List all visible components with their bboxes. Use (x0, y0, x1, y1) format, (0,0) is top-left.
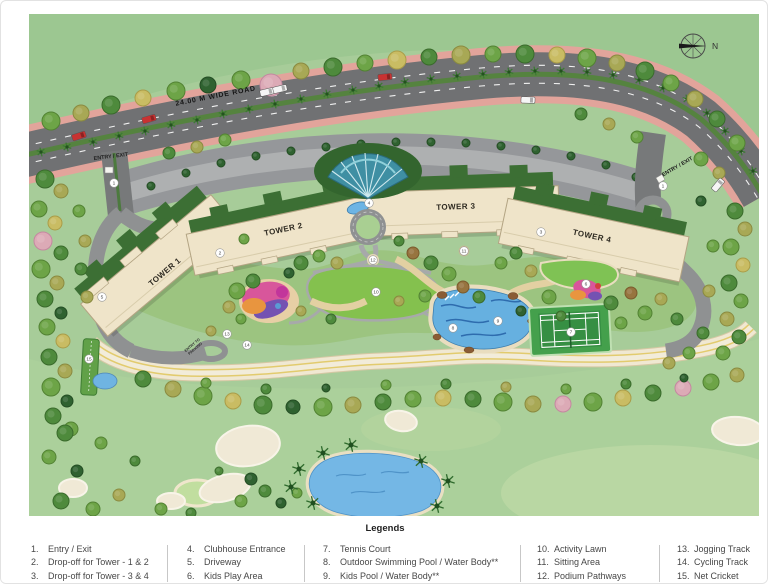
svg-text:1: 1 (113, 181, 116, 187)
legend-item: 13.Jogging Track (677, 543, 750, 556)
clubhouse (314, 143, 422, 199)
golf-light-patch (361, 407, 501, 451)
plan-marker: 6 (582, 280, 591, 289)
entry-court (353, 212, 383, 242)
svg-text:10: 10 (373, 290, 379, 296)
plan-marker: 4 (365, 199, 374, 208)
plan-marker: 11 (460, 247, 469, 256)
plan-marker: 2 (216, 249, 225, 258)
plan-marker: 8 (449, 324, 458, 333)
pond (93, 373, 117, 389)
legend-item: 1.Entry / Exit (31, 543, 149, 556)
legend-column-2: 4.Clubhouse Entrance 5.Driveway 6.Kids P… (187, 543, 286, 583)
svg-text:7: 7 (570, 330, 573, 336)
svg-text:8: 8 (452, 326, 455, 332)
legend-item: 5.Driveway (187, 556, 286, 569)
legend-item: 7.Tennis Court (323, 543, 498, 556)
legend-item: 2.Drop-off for Tower - 1 & 2 (31, 556, 149, 569)
svg-text:2: 2 (219, 251, 222, 257)
legend-item: 11.Sitting Area (537, 556, 626, 569)
legend: Legends 1.Entry / Exit 2.Drop-off for To… (1, 516, 768, 584)
svg-text:15: 15 (86, 357, 92, 363)
legend-item: 10.Activity Lawn (537, 543, 626, 556)
site-plan-page: TOWER 1 TOWER 2 TOWER 3 (0, 0, 768, 584)
legend-divider (659, 545, 660, 582)
legend-title: Legends (1, 523, 768, 534)
plan-marker: 14 (243, 341, 252, 350)
tower-3-label: TOWER 3 (436, 202, 476, 212)
svg-text:12: 12 (370, 258, 376, 264)
plan-marker: 5 (98, 293, 107, 302)
svg-text:14: 14 (244, 343, 250, 349)
legend-divider (167, 545, 168, 582)
legend-item: 12.Podium Pathways (537, 570, 626, 583)
legend-item: 14.Cycling Track (677, 556, 750, 569)
legend-item: 4.Clubhouse Entrance (187, 543, 286, 556)
plan-marker: 3 (537, 228, 546, 237)
car (378, 73, 393, 81)
legend-divider (304, 545, 305, 582)
legend-item: 8.Outdoor Swimming Pool / Water Body** (323, 556, 498, 569)
plan-marker: 7 (567, 328, 576, 337)
legend-item: 6.Kids Play Area (187, 570, 286, 583)
legend-column-1: 1.Entry / Exit 2.Drop-off for Tower - 1 … (31, 543, 149, 583)
legend-divider (520, 545, 521, 582)
svg-text:13: 13 (224, 332, 230, 338)
legend-column-4: 10.Activity Lawn 11.Sitting Area 12.Podi… (537, 543, 626, 583)
svg-text:6: 6 (585, 282, 588, 288)
plan-marker: 9 (494, 317, 503, 326)
svg-text:1: 1 (662, 184, 665, 190)
legend-item: 15.Net Cricket (677, 570, 750, 583)
car (521, 97, 535, 104)
svg-text:5: 5 (101, 295, 104, 301)
gate-booth (105, 167, 113, 173)
plan-marker: 13 (223, 330, 232, 339)
legend-column-5: 13.Jogging Track 14.Cycling Track 15.Net… (677, 543, 750, 583)
compass-north-label: N (712, 41, 718, 51)
legend-column-3: 7.Tennis Court 8.Outdoor Swimming Pool /… (323, 543, 498, 583)
svg-text:9: 9 (497, 319, 500, 325)
site-plan-svg: TOWER 1 TOWER 2 TOWER 3 (1, 1, 768, 516)
plan-marker: 15 (85, 355, 94, 364)
plan-marker: 1 (110, 179, 119, 188)
legend-item: 9.Kids Pool / Water Body** (323, 570, 498, 583)
svg-text:3: 3 (540, 230, 543, 236)
plan-marker: 1 (659, 182, 668, 191)
svg-text:4: 4 (368, 201, 371, 207)
plan-marker: 12 (369, 256, 378, 265)
legend-item: 3.Drop-off for Tower - 3 & 4 (31, 570, 149, 583)
svg-text:11: 11 (462, 249, 467, 255)
plan-marker: 10 (372, 288, 381, 297)
